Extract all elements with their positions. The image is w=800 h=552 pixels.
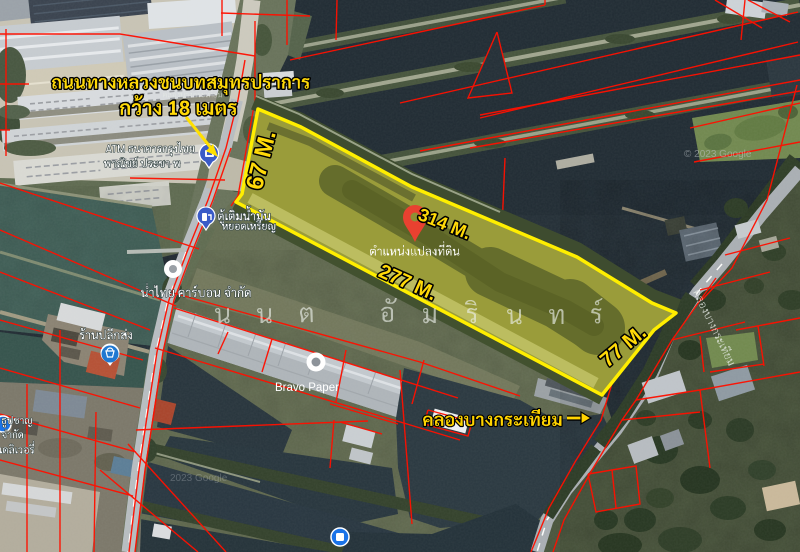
svg-text:© 2023 Google: © 2023 Google	[684, 149, 752, 160]
svg-text:2023 Google: 2023 Google	[170, 473, 228, 484]
svg-text:Bravo Paper: Bravo Paper	[275, 382, 339, 394]
